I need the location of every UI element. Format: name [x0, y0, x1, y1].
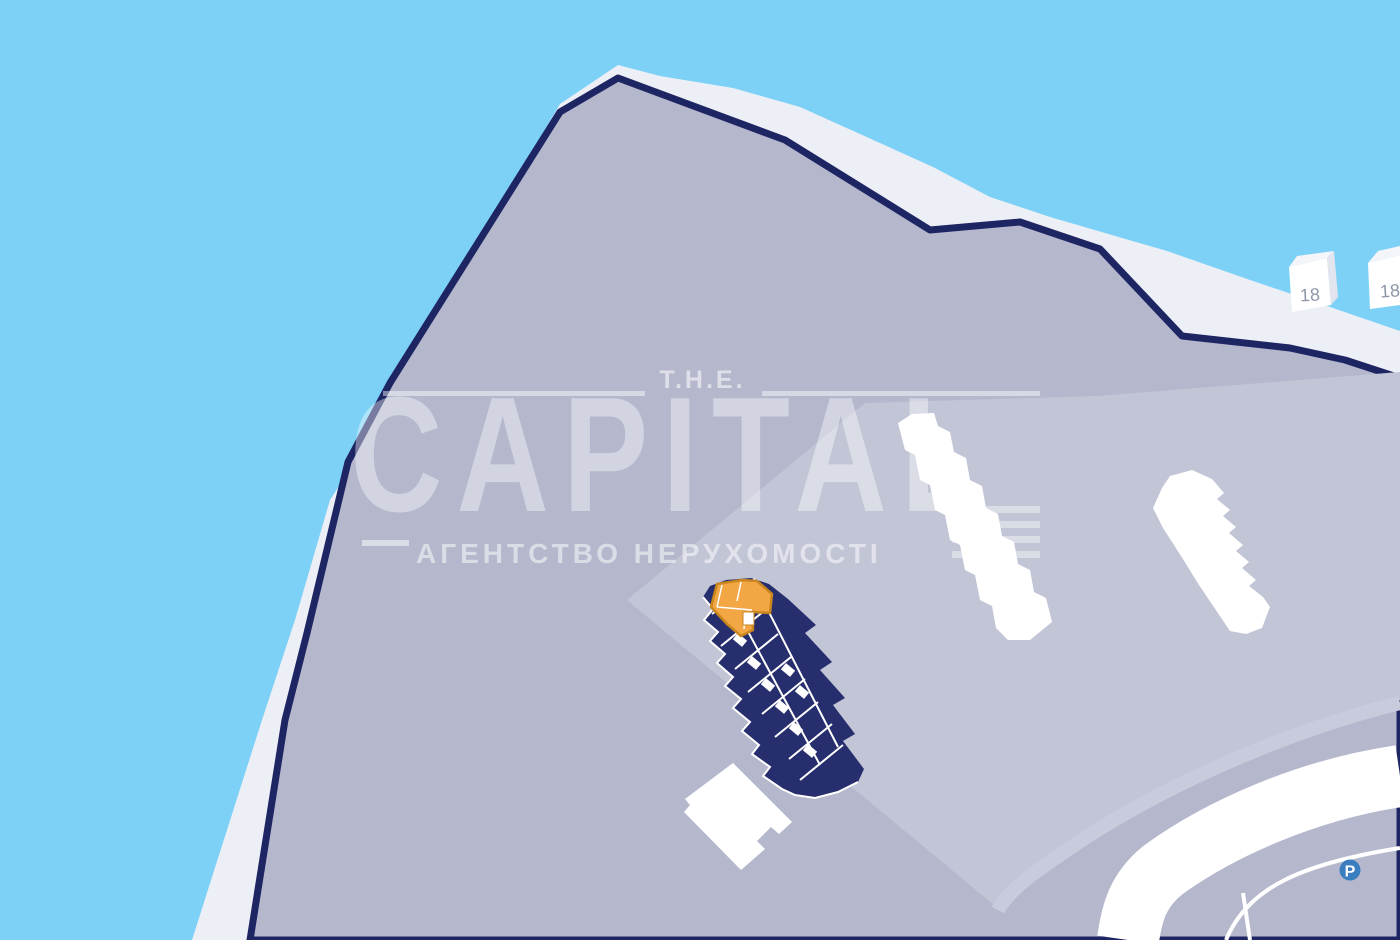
parking-label: P — [1345, 864, 1356, 881]
unit-room — [743, 612, 754, 625]
map-viewport[interactable]: 18 18 P T.H.E. CAPITAL АГЕНТСТВО НЕРУХОМ… — [0, 0, 1400, 940]
building-18-a-label: 18 — [1299, 284, 1320, 305]
building-18-a[interactable]: 18 — [1289, 251, 1338, 312]
building-18-b-label: 18 — [1379, 280, 1400, 301]
map-canvas[interactable]: 18 18 P — [0, 0, 1400, 940]
parking-marker: P — [1340, 860, 1361, 881]
